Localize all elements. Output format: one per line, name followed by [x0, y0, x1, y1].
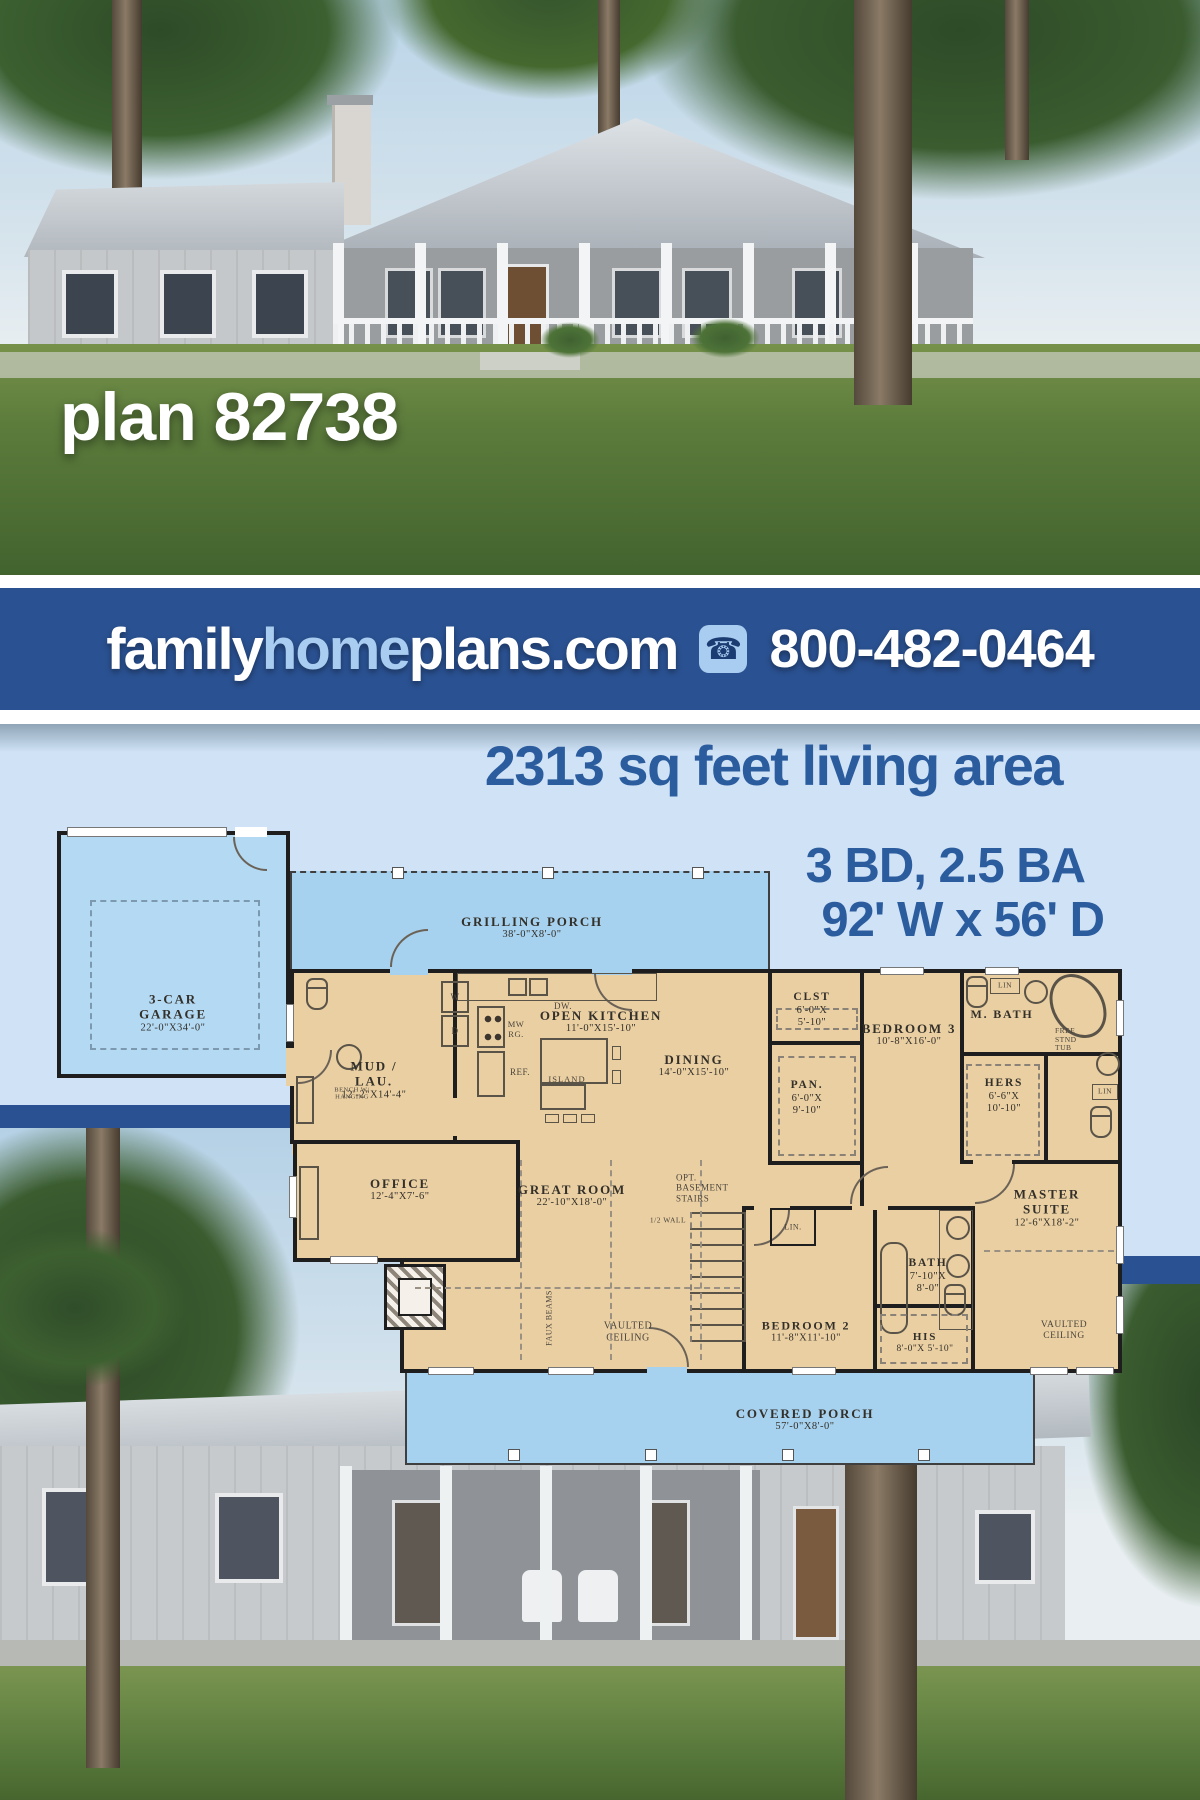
stool-icon: [563, 1114, 577, 1123]
window-marker: [428, 1367, 474, 1375]
toilet-icon: [306, 978, 328, 1010]
porch-post: [542, 867, 554, 879]
note-bench: BENCH W/ HANGING: [323, 1087, 381, 1102]
door-opening: [647, 1367, 687, 1375]
kitchen-sink-icon: [529, 978, 548, 996]
note-lin-mbath: LIN: [998, 982, 1012, 991]
toilet-icon: [966, 976, 988, 1008]
garage-door-marker: [67, 827, 227, 837]
label-his-closet: HIS 8'-0"X 5'-10": [896, 1331, 954, 1355]
note-free-tub: FREE STND TUB: [1055, 1027, 1089, 1053]
note-faux-beams: FAUX BEAMS: [544, 1290, 553, 1346]
floor-plan: 3-CAR GARAGE 22'-0"X34'-0" GRILLING PORC…: [0, 0, 1200, 1800]
wall: [1044, 1052, 1048, 1164]
note-basement-stairs: OPT. BASEMENT STAIRS: [676, 1172, 748, 1203]
sink-icon: [946, 1216, 970, 1240]
wall: [960, 969, 964, 1164]
window-marker: [880, 967, 924, 975]
note-washer: W: [451, 992, 460, 1002]
porch-post: [918, 1449, 930, 1461]
wall: [768, 969, 772, 1165]
basement-stairs: [690, 1212, 746, 1342]
stool-icon: [545, 1114, 559, 1123]
porch-post: [508, 1449, 520, 1461]
ceiling-break-line: [415, 1287, 740, 1289]
wall: [768, 1041, 864, 1045]
label-clst: CLST 6'-0"X 5'-10": [783, 991, 841, 1029]
porch-post: [692, 867, 704, 879]
kitchen-island: [540, 1084, 586, 1110]
window-marker: [1116, 1296, 1124, 1334]
label-covered-porch: COVERED PORCH 57'-0"X8'-0": [736, 1406, 875, 1434]
window-marker: [1076, 1367, 1114, 1375]
window-marker: [548, 1367, 594, 1375]
door-opening: [852, 1206, 888, 1210]
window-marker: [286, 1004, 294, 1042]
window-marker: [792, 1367, 836, 1375]
label-great-room: GREAT ROOM 22'-10"X18'-0": [518, 1182, 626, 1210]
note-vaulted-great: VAULTED CEILING: [596, 1321, 660, 1344]
note-mw-rg: MW RG.: [503, 1020, 529, 1040]
note-lin-hall: LIN.: [784, 1222, 801, 1231]
sink-icon: [1096, 1052, 1120, 1076]
label-master-suite: MASTER SUITE 12'-6"X18'-2": [991, 1186, 1103, 1229]
label-bath: BATH 7'-10"X 8'-0": [897, 1257, 959, 1295]
stove-icon: [477, 1006, 505, 1048]
note-vaulted-master: VAULTED CEILING: [1034, 1320, 1094, 1342]
note-dryer: D: [452, 1026, 459, 1036]
label-bedroom-3: BEDROOM 3 10'-8"X16'-0": [862, 1021, 957, 1049]
toilet-icon: [1090, 1106, 1112, 1138]
label-pantry: PAN. 6'-0"X 9'-10": [778, 1079, 836, 1117]
porch-post: [392, 867, 404, 879]
office-desk: [299, 1166, 319, 1240]
kitchen-counter: [457, 973, 657, 1001]
wall: [293, 1140, 520, 1144]
door-opening: [235, 827, 267, 837]
note-half-wall: 1/2 WALL: [650, 1217, 686, 1226]
window-marker: [985, 967, 1019, 975]
window-marker: [330, 1256, 378, 1264]
porch-post: [645, 1449, 657, 1461]
wall: [400, 1369, 1122, 1373]
door-opening: [453, 1098, 457, 1136]
wall: [960, 1052, 1122, 1056]
label-bedroom-2: BEDROOM 2 11'-8"X11'-10": [762, 1319, 851, 1346]
label-office: OFFICE 12'-4"X7'-6": [370, 1176, 430, 1204]
window-marker: [289, 1176, 297, 1218]
note-lin-hallr: LIN: [1098, 1088, 1112, 1097]
fridge-icon: [477, 1051, 505, 1097]
stool-icon: [581, 1114, 595, 1123]
door-opening: [390, 967, 428, 975]
note-dw: DW.: [554, 1001, 572, 1011]
label-hers-closet: HERS 6'-6"X 10'-10": [976, 1077, 1032, 1115]
wall: [873, 1206, 877, 1373]
label-garage: 3-CAR GARAGE 22'-0"X34'-0": [128, 991, 218, 1034]
window-marker: [1116, 1226, 1124, 1264]
note-island: ISLAND: [548, 1075, 585, 1085]
label-master-bath: M. BATH: [970, 1007, 1033, 1021]
wall: [293, 1258, 520, 1262]
wall: [768, 1161, 864, 1165]
porch-post: [782, 1449, 794, 1461]
ceiling-break-line: [984, 1250, 1114, 1252]
room-covered-porch: [405, 1371, 1035, 1465]
window-marker: [1030, 1367, 1068, 1375]
stool-icon: [612, 1046, 621, 1060]
sink-icon: [1024, 980, 1048, 1004]
promo-page: plan 82738 familyhomeplans.com ☎ 800-482…: [0, 0, 1200, 1800]
kitchen-sink-icon: [508, 978, 527, 996]
note-ref: REF.: [510, 1067, 530, 1077]
window-marker: [1116, 1000, 1124, 1036]
firebox: [398, 1278, 432, 1316]
label-grilling-porch: GRILLING PORCH 38'-0"X8'-0": [461, 914, 603, 942]
label-dining: DINING 14'-0"X15'-10": [659, 1052, 730, 1080]
stool-icon: [612, 1070, 621, 1084]
label-open-kitchen: OPEN KITCHEN 11'-0"X15'-10": [540, 1008, 662, 1036]
bench-icon: [296, 1076, 314, 1124]
